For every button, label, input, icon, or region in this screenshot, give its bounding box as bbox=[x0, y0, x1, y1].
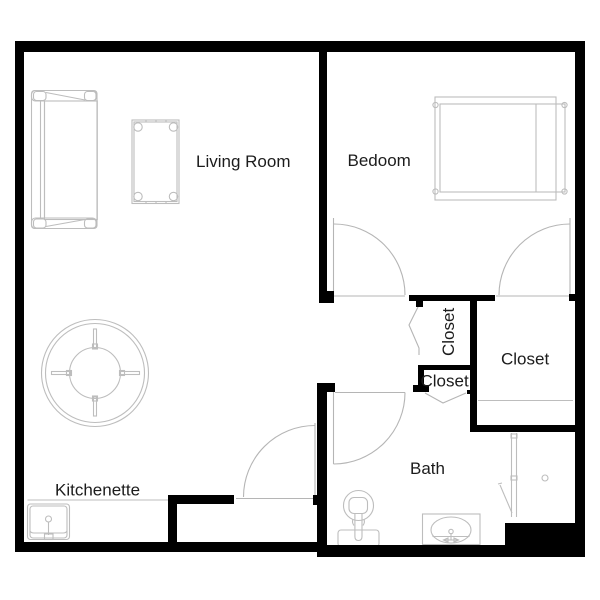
svg-text:Bath: Bath bbox=[410, 459, 445, 478]
svg-text:Bedoom: Bedoom bbox=[348, 151, 411, 170]
svg-text:Closet: Closet bbox=[439, 308, 458, 356]
svg-text:Closet: Closet bbox=[421, 372, 469, 391]
svg-text:Living Room: Living Room bbox=[196, 152, 291, 171]
svg-text:Closet: Closet bbox=[501, 350, 549, 369]
svg-text:Kitchenette: Kitchenette bbox=[55, 481, 140, 500]
